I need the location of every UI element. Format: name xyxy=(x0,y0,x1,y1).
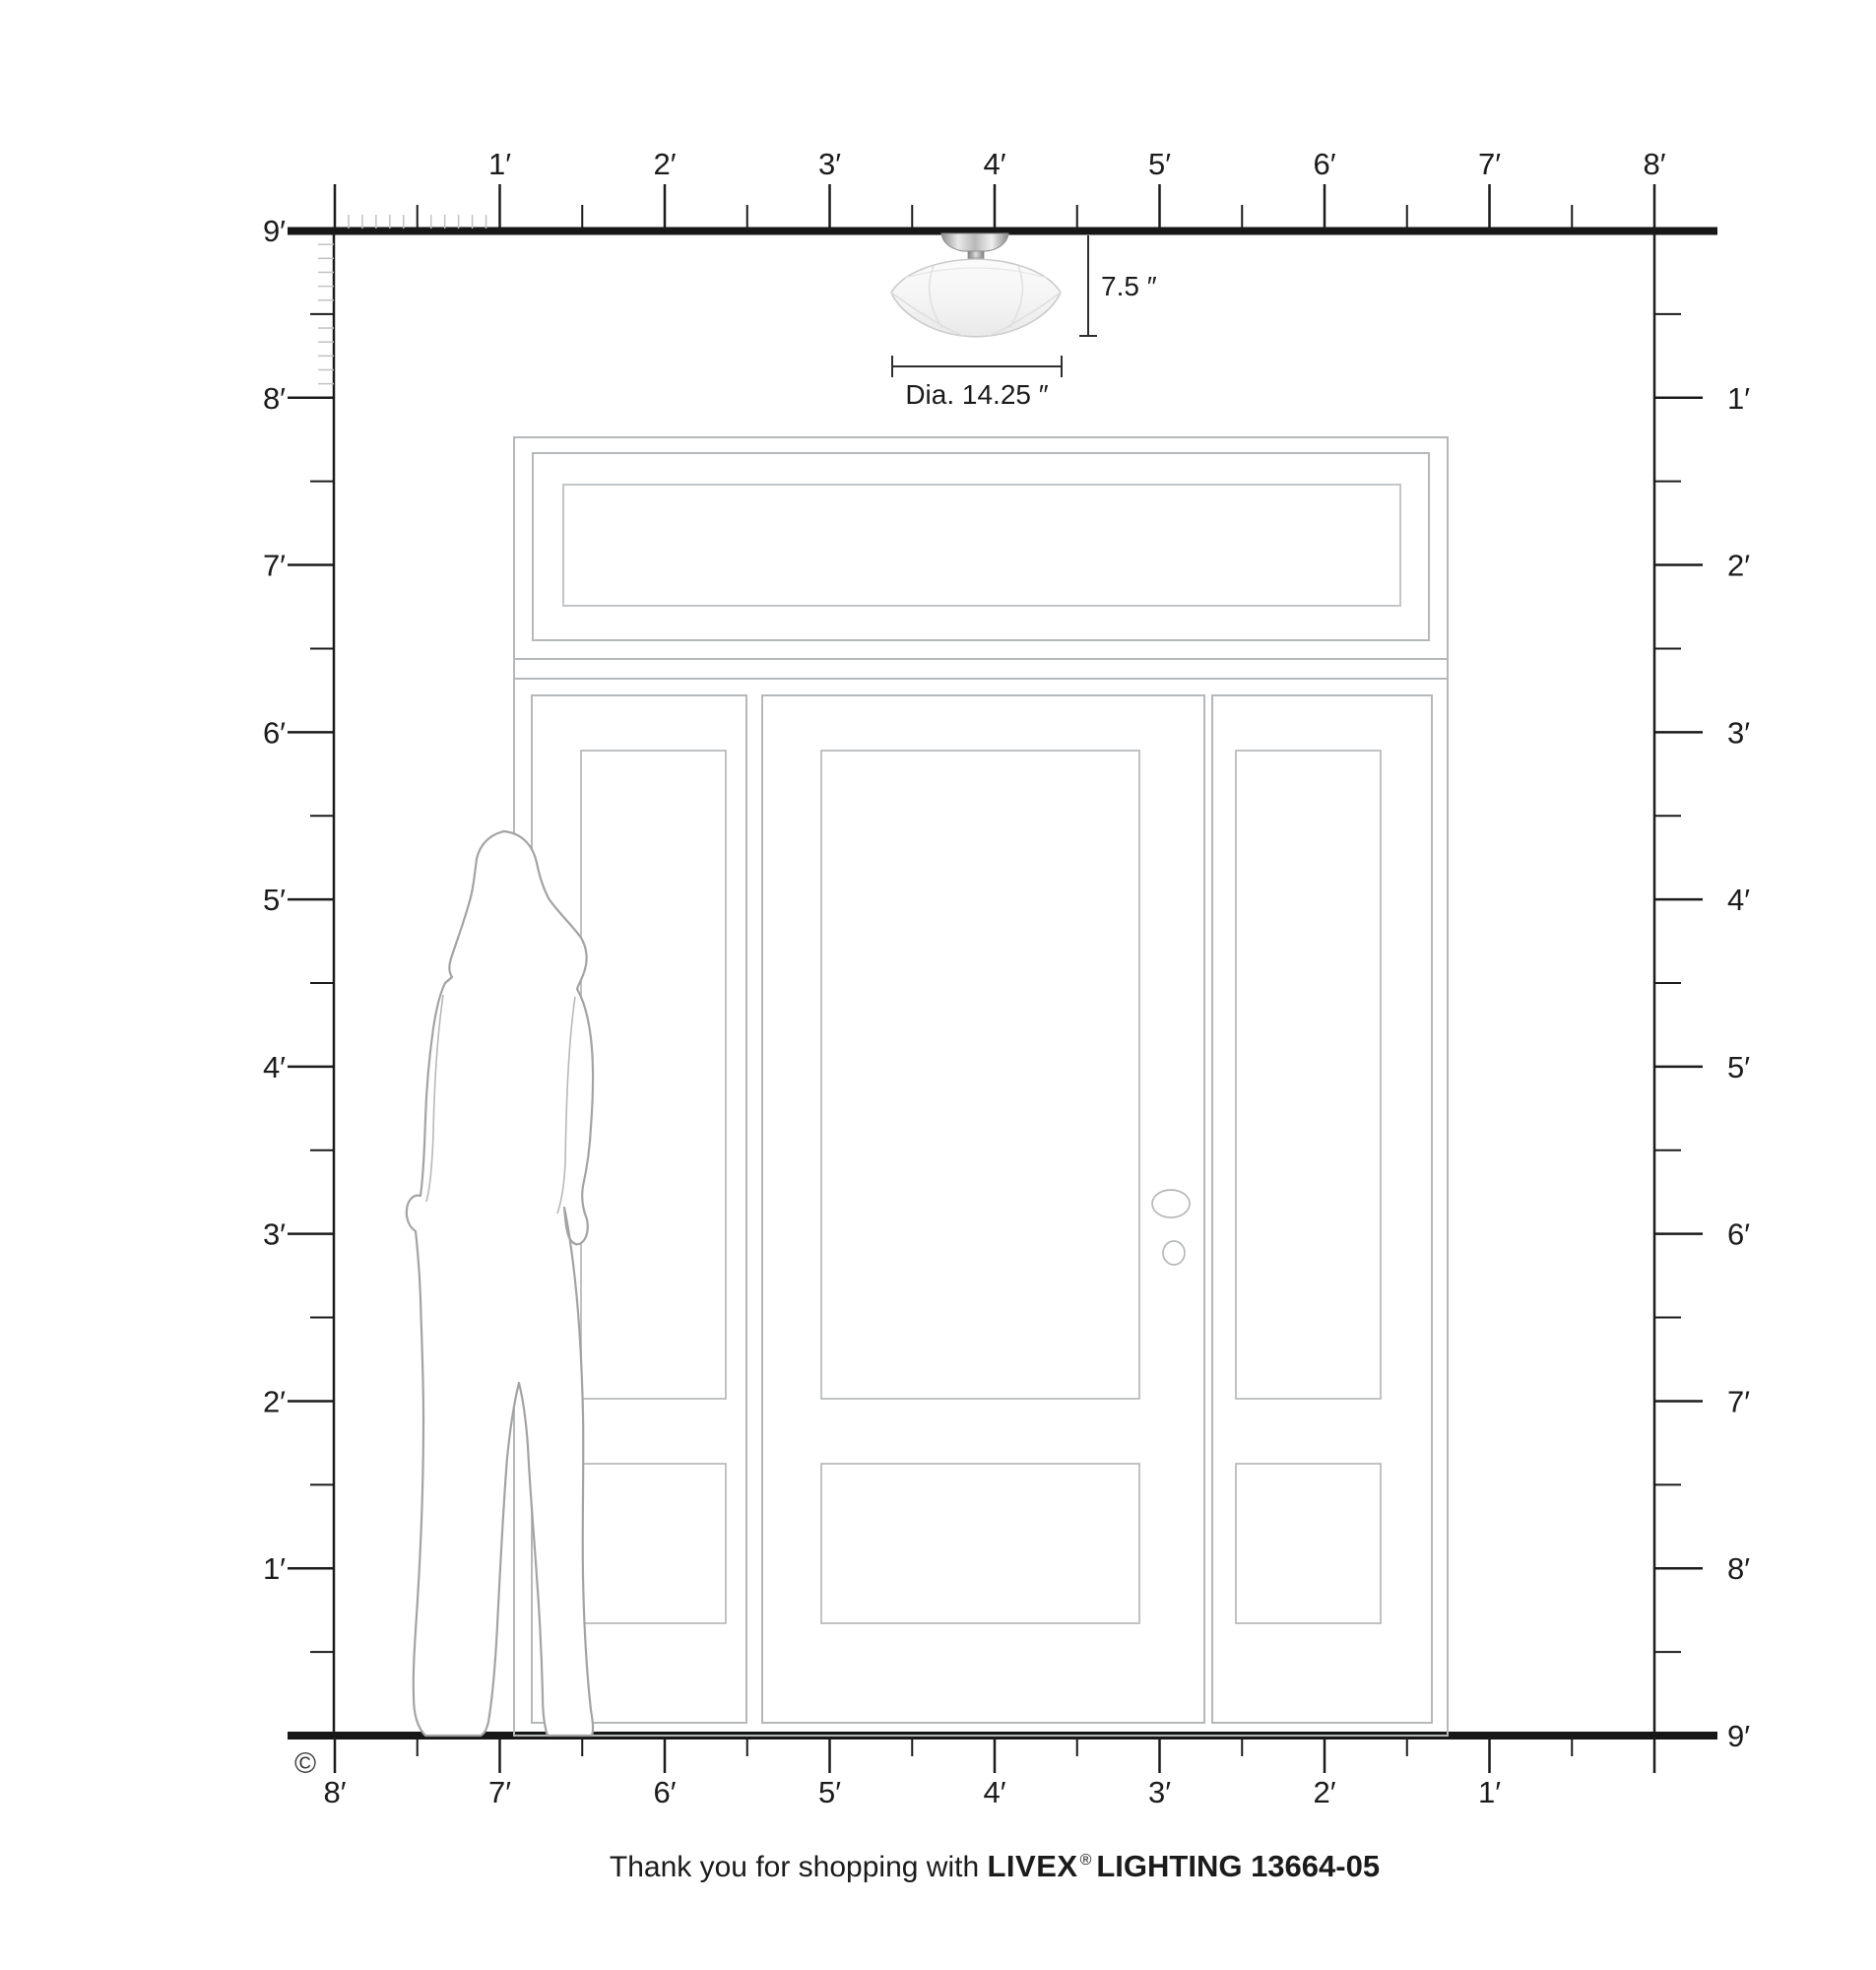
ruler-label: 4′ xyxy=(263,1050,286,1084)
door-knob xyxy=(1152,1190,1190,1217)
footer-thanks: Thank you for shopping with xyxy=(610,1851,988,1883)
ruler-label: 2′ xyxy=(1313,1775,1335,1809)
diagram-canvas: 1′2′3′4′5′6′7′8′8′7′6′5′4′3′2′1′9′8′7′6′… xyxy=(0,0,1876,1970)
footer-product: LIGHTING 13664-05 xyxy=(1096,1849,1380,1883)
ruler-label: 1′ xyxy=(488,147,511,181)
ruler-label: 9′ xyxy=(263,214,286,248)
footer-text: Thank you for shopping with LIVEX®LIGHTI… xyxy=(335,1850,1654,1889)
ruler-label: 3′ xyxy=(1727,715,1750,750)
woman-outline xyxy=(407,831,593,1736)
door-upper-panel xyxy=(821,751,1139,1399)
door-unit-illustration xyxy=(514,437,1448,1736)
ruler-label: 9′ xyxy=(1727,1719,1750,1753)
ruler-label: 8′ xyxy=(263,381,286,416)
right-sidelight xyxy=(1212,695,1432,1723)
transom-glass xyxy=(563,485,1400,606)
ruler-label: 8′ xyxy=(1643,147,1665,181)
ruler-label: 2′ xyxy=(653,147,676,181)
ruler-label: 1′ xyxy=(263,1551,286,1586)
ruler-label: 5′ xyxy=(263,883,286,917)
left-sidelight-upper-panel xyxy=(581,751,726,1399)
ruler-label: 7′ xyxy=(1478,147,1501,181)
footer-brand: LIVEX xyxy=(987,1849,1077,1883)
right-sidelight-upper-panel xyxy=(1236,751,1381,1399)
ruler-label: 2′ xyxy=(1727,549,1750,583)
ruler-label: 4′ xyxy=(983,147,1005,181)
copyright-symbol: © xyxy=(294,1747,316,1780)
ceiling-fixture-illustration xyxy=(891,233,1061,337)
door-slab xyxy=(762,695,1204,1723)
woman-silhouette xyxy=(407,831,593,1736)
ruler-label: 3′ xyxy=(263,1217,286,1252)
ruler-label: 6′ xyxy=(263,715,286,750)
door-outer-frame xyxy=(514,437,1448,1736)
ruler-label: 5′ xyxy=(818,1775,841,1809)
ruler-label: 8′ xyxy=(323,1775,346,1809)
ruler-label: 8′ xyxy=(1727,1551,1750,1586)
fixture-canopy xyxy=(941,233,1008,251)
diameter-dim-label: Dia. 14.25 ″ xyxy=(905,379,1048,410)
right-sidelight-lower-panel xyxy=(1236,1464,1381,1623)
ruler-label: 3′ xyxy=(1148,1775,1171,1809)
ruler-label: 4′ xyxy=(983,1775,1005,1809)
ruler-label: 2′ xyxy=(263,1384,286,1418)
ruler-label: 7′ xyxy=(488,1775,511,1809)
ruler-label: 1′ xyxy=(1727,381,1750,416)
fixture-glass-bowl xyxy=(891,259,1061,337)
registered-trademark-icon: ® xyxy=(1080,1852,1092,1869)
ruler-label: 5′ xyxy=(1727,1050,1750,1084)
ruler-label: 3′ xyxy=(818,147,841,181)
ruler-label: 6′ xyxy=(1727,1217,1750,1252)
left-sidelight-lower-panel xyxy=(581,1464,726,1623)
ruler-label: 5′ xyxy=(1148,147,1171,181)
ruler-label: 6′ xyxy=(1313,147,1335,181)
ruler-label: 7′ xyxy=(1727,1384,1750,1418)
door-lower-panel xyxy=(821,1464,1139,1623)
scale-diagram-page: 1′2′3′4′5′6′7′8′8′7′6′5′4′3′2′1′9′8′7′6′… xyxy=(0,0,1876,1970)
door-keyhole xyxy=(1163,1241,1185,1265)
transom-frame xyxy=(533,453,1429,640)
ruler-label: 4′ xyxy=(1727,883,1750,917)
ruler-label: 6′ xyxy=(653,1775,676,1809)
height-dim-label: 7.5 ″ xyxy=(1101,271,1157,301)
ruler-label: 7′ xyxy=(263,549,286,583)
ruler-label: 1′ xyxy=(1478,1775,1501,1809)
